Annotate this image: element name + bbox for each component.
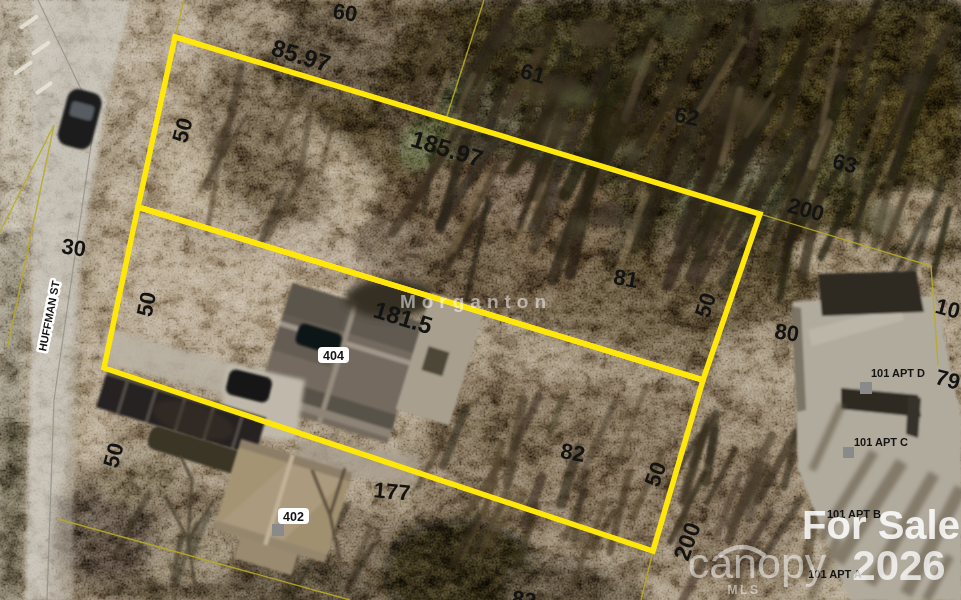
svg-text:80: 80 [773, 318, 801, 346]
svg-text:Morganton: Morganton [400, 291, 552, 312]
svg-text:60: 60 [331, 0, 359, 27]
svg-text:404: 404 [323, 349, 344, 363]
svg-text:50: 50 [132, 290, 162, 319]
svg-text:101 APT D: 101 APT D [871, 367, 925, 379]
svg-text:82: 82 [559, 438, 587, 467]
svg-text:82: 82 [510, 585, 538, 600]
svg-text:canopy: canopy [688, 539, 827, 587]
svg-text:30: 30 [60, 233, 88, 261]
svg-text:MLS: MLS [728, 583, 761, 597]
svg-text:101 APT C: 101 APT C [854, 436, 908, 448]
svg-text:177: 177 [373, 477, 412, 505]
svg-text:81: 81 [612, 264, 640, 293]
svg-text:402: 402 [283, 510, 304, 524]
svg-text:62: 62 [672, 102, 701, 132]
svg-text:2026: 2026 [852, 542, 945, 589]
